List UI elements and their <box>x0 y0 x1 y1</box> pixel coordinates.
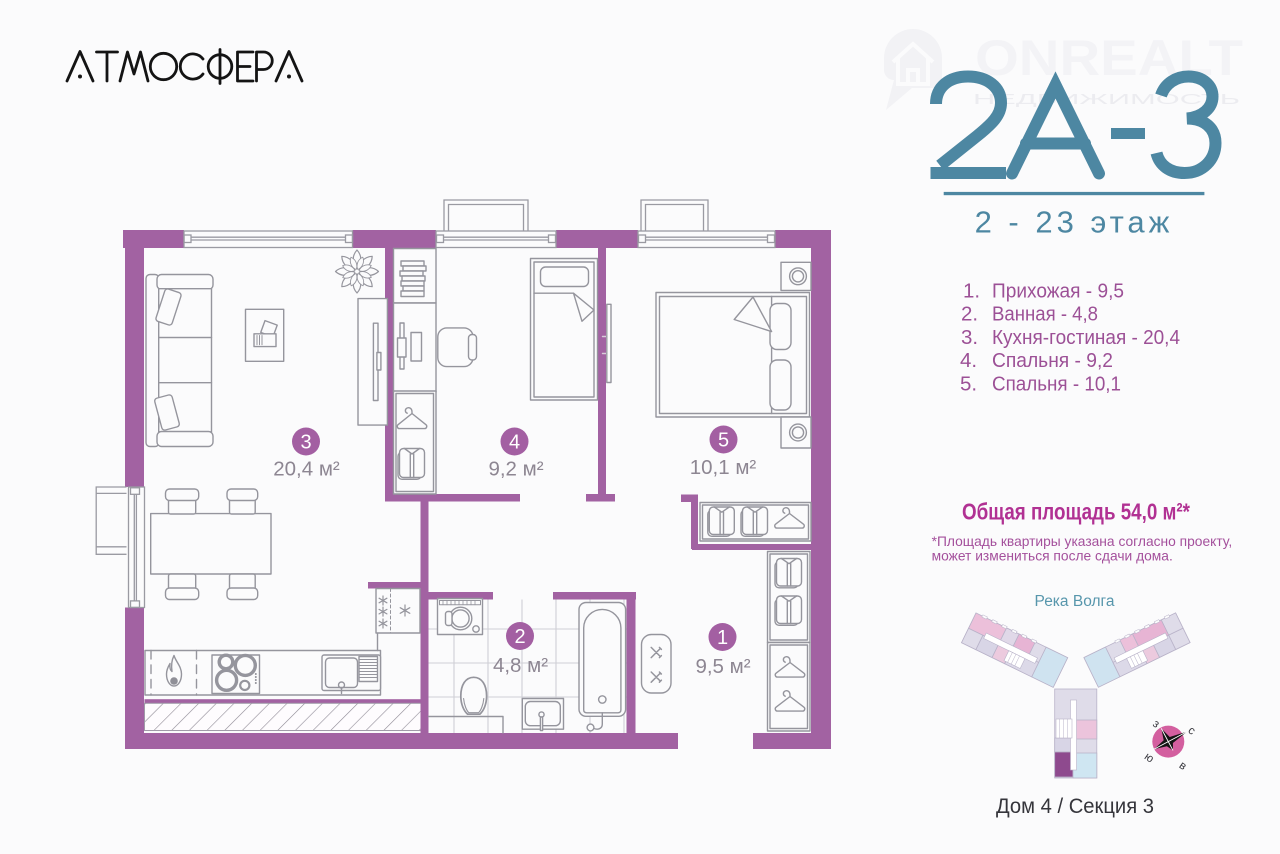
svg-text:Дом 4 / Секция 3: Дом 4 / Секция 3 <box>996 795 1154 818</box>
svg-text:4.: 4. <box>960 349 977 372</box>
svg-text:4,8 м²: 4,8 м² <box>493 654 548 677</box>
svg-text:может измениться после сдачи д: может измениться после сдачи дома. <box>932 549 1173 564</box>
svg-text:Ванная - 4,8: Ванная - 4,8 <box>992 303 1098 326</box>
svg-text:1.: 1. <box>963 280 980 303</box>
svg-text:Река Волга: Река Волга <box>1035 593 1115 610</box>
svg-text:9,5 м²: 9,5 м² <box>695 655 750 678</box>
svg-text:1: 1 <box>717 627 728 649</box>
svg-text:НЕДВИЖИМОСТЬ: НЕДВИЖИМОСТЬ <box>973 91 1240 108</box>
svg-text:2 - 23 этаж: 2 - 23 этаж <box>975 205 1174 240</box>
svg-text:5.: 5. <box>960 372 977 395</box>
svg-text:20,4 м²: 20,4 м² <box>273 458 340 481</box>
svg-text:2.: 2. <box>961 303 978 326</box>
svg-text:10,1 м²: 10,1 м² <box>690 456 757 479</box>
svg-text:4: 4 <box>509 432 520 454</box>
svg-text:Общая площадь 54,0 м²*: Общая площадь 54,0 м²* <box>962 499 1191 525</box>
svg-text:*Площадь квартиры указана согл: *Площадь квартиры указана согласно проек… <box>932 534 1233 549</box>
svg-text:Спальня - 10,1: Спальня - 10,1 <box>992 372 1121 395</box>
svg-text:Прихожая - 9,5: Прихожая - 9,5 <box>992 280 1124 303</box>
svg-text:5: 5 <box>718 430 729 452</box>
svg-text:3.: 3. <box>961 326 978 349</box>
svg-text:3: 3 <box>300 432 311 454</box>
svg-text:9,2 м²: 9,2 м² <box>488 458 543 481</box>
svg-text:Кухня-гостиная - 20,4: Кухня-гостиная - 20,4 <box>992 326 1180 349</box>
svg-text:Спальня - 9,2: Спальня - 9,2 <box>992 349 1113 372</box>
svg-text:2: 2 <box>514 626 525 648</box>
